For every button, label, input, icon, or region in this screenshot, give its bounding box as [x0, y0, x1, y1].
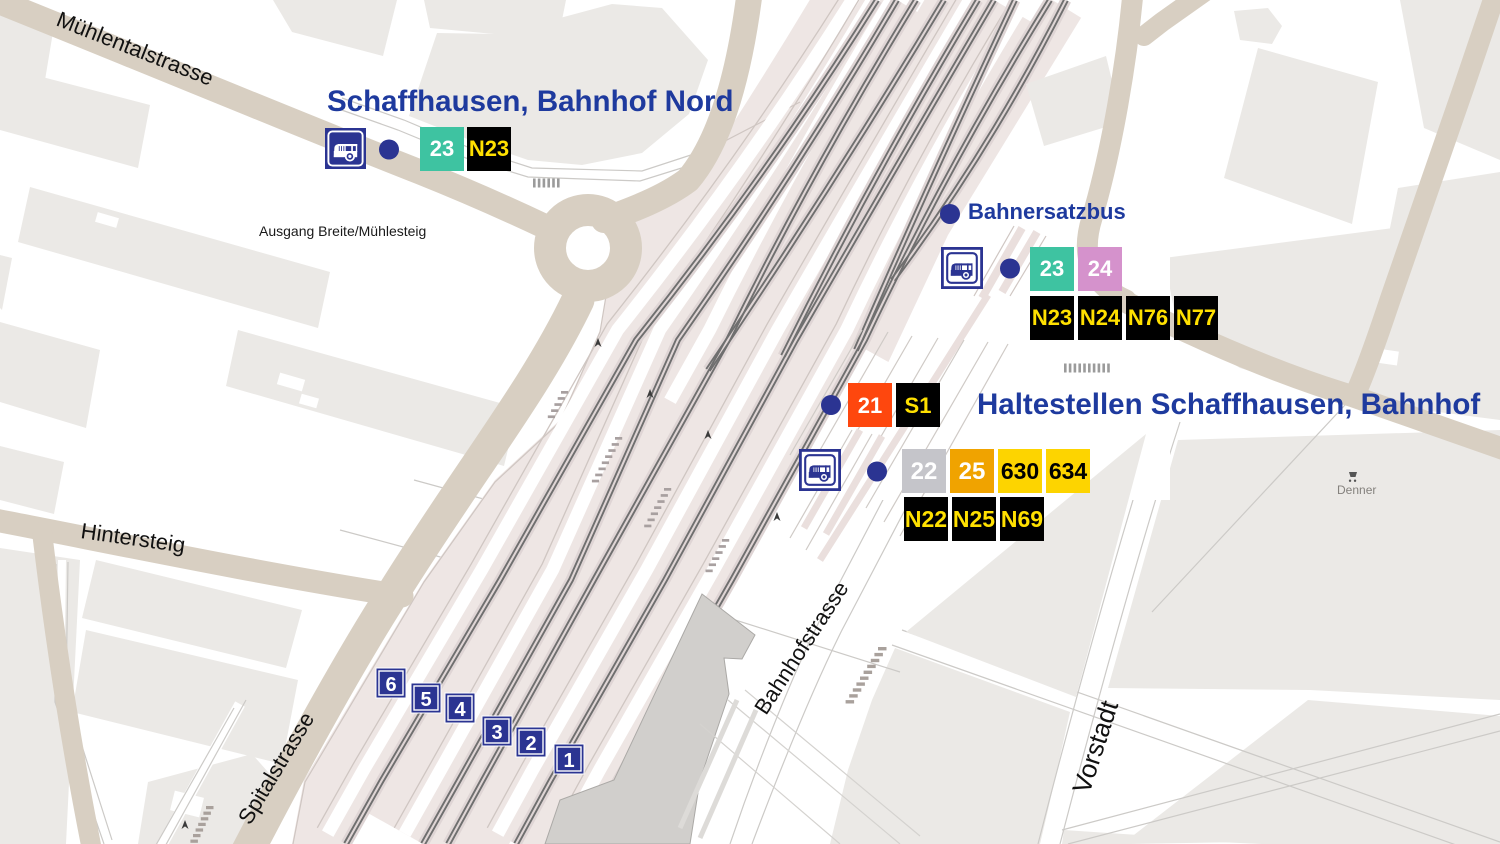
- svg-text:23: 23: [1040, 256, 1064, 281]
- svg-text:23: 23: [430, 136, 454, 161]
- svg-text:3: 3: [491, 722, 502, 744]
- svg-text:2: 2: [525, 733, 536, 755]
- svg-text:N77: N77: [1176, 305, 1216, 330]
- svg-text:N76: N76: [1128, 305, 1168, 330]
- svg-text:N25: N25: [953, 506, 995, 532]
- svg-text:Haltestellen Schaffhausen, Bah: Haltestellen Schaffhausen, Bahnhof: [977, 388, 1480, 421]
- svg-text:Ausgang Breite/Mühlesteig: Ausgang Breite/Mühlesteig: [259, 223, 426, 239]
- svg-text:N69: N69: [1001, 506, 1043, 532]
- svg-text:Denner: Denner: [1337, 483, 1376, 497]
- svg-text:N24: N24: [1080, 305, 1121, 330]
- svg-text:S1: S1: [905, 393, 932, 418]
- svg-text:N23: N23: [469, 136, 509, 161]
- svg-text:N23: N23: [1032, 305, 1072, 330]
- svg-text:1: 1: [563, 750, 574, 772]
- svg-text:Schaffhausen, Bahnhof Nord: Schaffhausen, Bahnhof Nord: [327, 85, 733, 118]
- svg-text:22: 22: [911, 458, 938, 485]
- svg-text:Bahnersatzbus: Bahnersatzbus: [968, 199, 1126, 224]
- svg-text:N22: N22: [905, 506, 947, 532]
- svg-text:4: 4: [454, 699, 466, 721]
- svg-text:5: 5: [420, 689, 431, 711]
- svg-text:630: 630: [1001, 458, 1039, 484]
- svg-text:25: 25: [959, 458, 986, 485]
- svg-text:6: 6: [385, 674, 396, 696]
- svg-text:24: 24: [1088, 256, 1113, 281]
- svg-text:21: 21: [858, 393, 882, 418]
- svg-text:634: 634: [1049, 458, 1088, 484]
